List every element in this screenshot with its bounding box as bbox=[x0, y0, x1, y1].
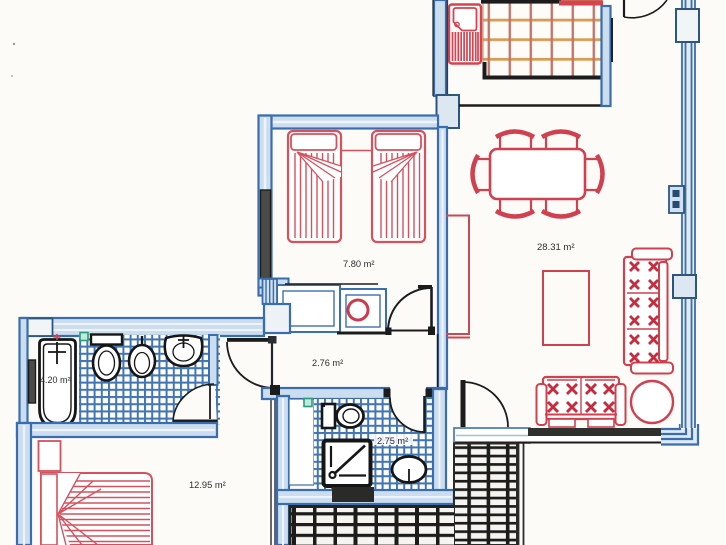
svg-text:2.75 m²: 2.75 m² bbox=[377, 436, 408, 446]
svg-text:28.31 m²: 28.31 m² bbox=[537, 242, 575, 253]
svg-text:2.76 m²: 2.76 m² bbox=[312, 358, 343, 368]
svg-text:7.80 m²: 7.80 m² bbox=[343, 259, 375, 269]
svg-text:12.95 m²: 12.95 m² bbox=[189, 480, 226, 490]
svg-text:4.20 m²: 4.20 m² bbox=[40, 375, 71, 385]
